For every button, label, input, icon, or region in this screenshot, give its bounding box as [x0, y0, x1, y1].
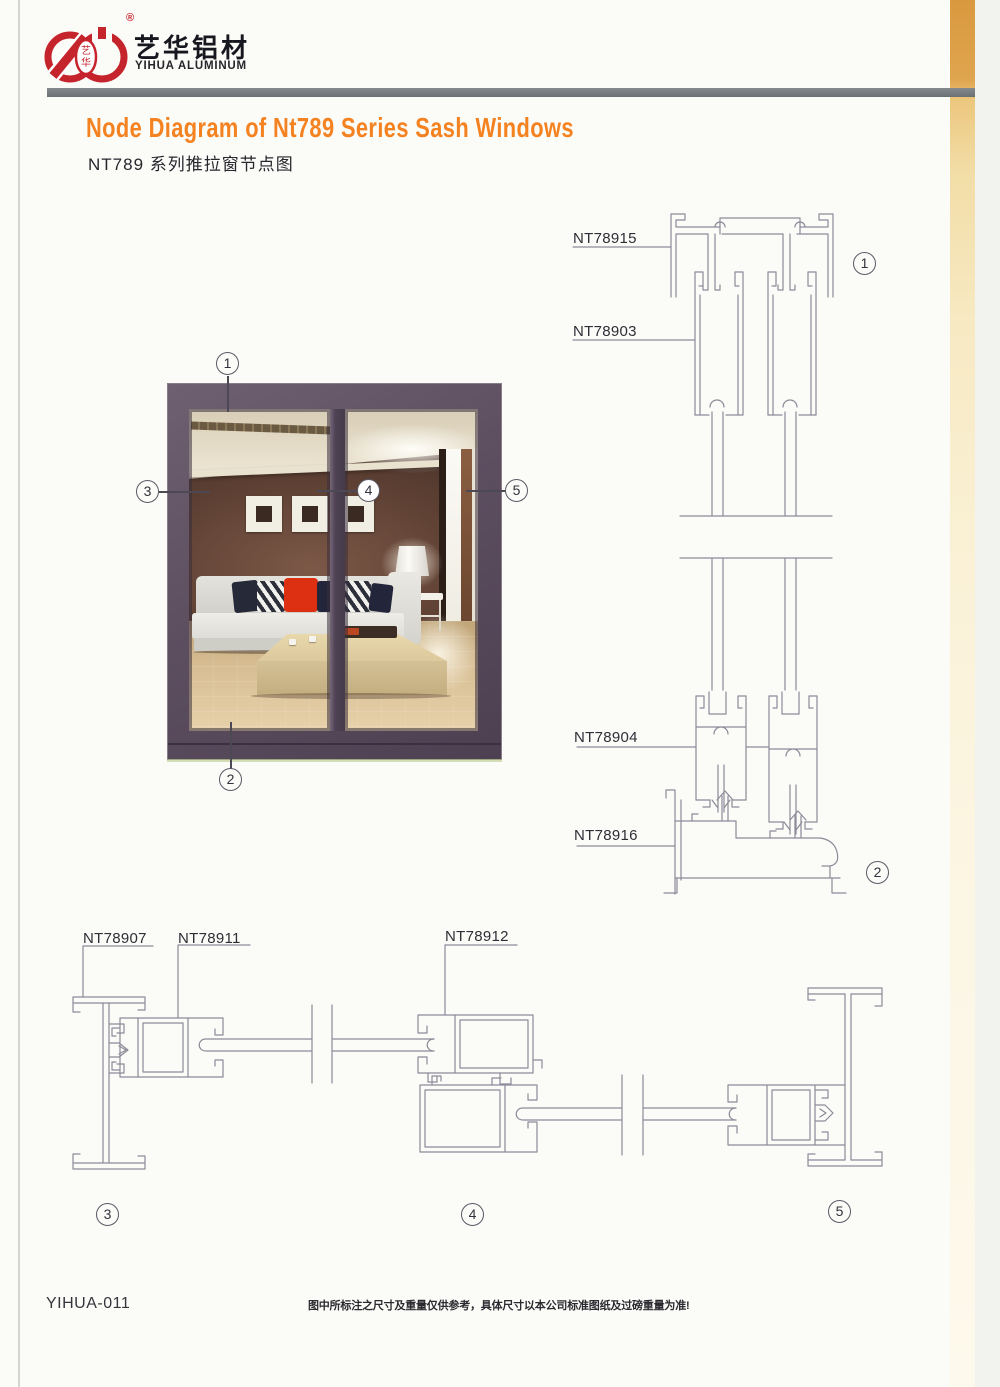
- frame-bottom-edge: [167, 759, 502, 762]
- label-head-frame: NT78915: [573, 230, 637, 247]
- callout-1: 1: [216, 352, 239, 375]
- horizontal-section-drawing: [60, 940, 900, 1190]
- section-callout-3: 3: [96, 1203, 119, 1226]
- sill-profile: [664, 790, 846, 894]
- leader-line-2: [230, 722, 232, 769]
- logo-emblem-icon: 艺 华: [40, 16, 136, 90]
- leader-line-5: [466, 490, 506, 492]
- catalog-page: 艺 华 ® 艺华铝材 YIHUA ALUMINUM Node Diagram o…: [0, 0, 1000, 1387]
- break-lines: [312, 1005, 332, 1083]
- section-callout-5: 5: [828, 1200, 851, 1223]
- label-sash-top: NT78903: [573, 323, 637, 340]
- right-sash-outline: [345, 409, 478, 731]
- page-title-en: Node Diagram of Nt789 Series Sash Window…: [86, 112, 574, 144]
- label-side-jamb: NT78907: [83, 930, 147, 947]
- page-title-cn: NT789 系列推拉窗节点图: [88, 150, 294, 175]
- callout-4: 4: [357, 479, 380, 502]
- company-logo: 艺 华: [40, 16, 136, 90]
- leader-line-1: [227, 376, 229, 412]
- label-glazing-sash: NT78911: [178, 930, 241, 947]
- bottom-rail-line: [168, 743, 501, 745]
- callout-2: 2: [219, 768, 242, 791]
- leader-line-3: [159, 491, 210, 493]
- header-divider-bar: [47, 88, 975, 97]
- callout-3: 3: [136, 480, 159, 503]
- right-jamb-profile: [808, 988, 882, 1166]
- page-right-background: [975, 0, 1000, 1387]
- meeting-stile-profiles: [418, 1015, 736, 1155]
- right-sash-profile: [728, 1085, 845, 1145]
- break-lines: [622, 1075, 643, 1155]
- label-leader-lines: [83, 945, 517, 1018]
- left-jamb-profile: [73, 997, 145, 1169]
- label-sash-bottom: NT78904: [574, 729, 638, 746]
- label-sill: NT78916: [574, 827, 638, 844]
- document-code: YIHUA-011: [46, 1295, 130, 1313]
- window-illustration: [167, 383, 502, 760]
- registered-trademark: ®: [126, 12, 134, 24]
- section-callout-4: 4: [461, 1203, 484, 1226]
- logo-char-top: 艺: [81, 45, 91, 57]
- logo-char-bottom: 华: [81, 56, 91, 69]
- window-mullion: [330, 409, 345, 731]
- sash-top-profiles: [695, 272, 816, 415]
- page-edge-strip: [950, 0, 975, 1387]
- vertical-section-drawing: [560, 200, 900, 900]
- left-sash-outline: [189, 409, 330, 731]
- label-meeting-stile: NT78912: [445, 928, 509, 945]
- glass-pane-lines: [680, 412, 832, 690]
- leader-line-4: [317, 490, 358, 492]
- section-callout-2: 2: [866, 861, 889, 884]
- section-break-lines: [680, 516, 832, 558]
- footer-disclaimer: 图中所标注之尺寸及重量仅供参考，具体尺寸以本公司标准图纸及过磅重量为准!: [308, 1297, 689, 1313]
- section-callout-1: 1: [853, 252, 876, 275]
- brand-name-en: YIHUA ALUMINUM: [135, 60, 247, 72]
- callout-5: 5: [505, 479, 528, 502]
- left-sash-profile: [112, 1005, 434, 1083]
- page-left-edge: [18, 0, 20, 1387]
